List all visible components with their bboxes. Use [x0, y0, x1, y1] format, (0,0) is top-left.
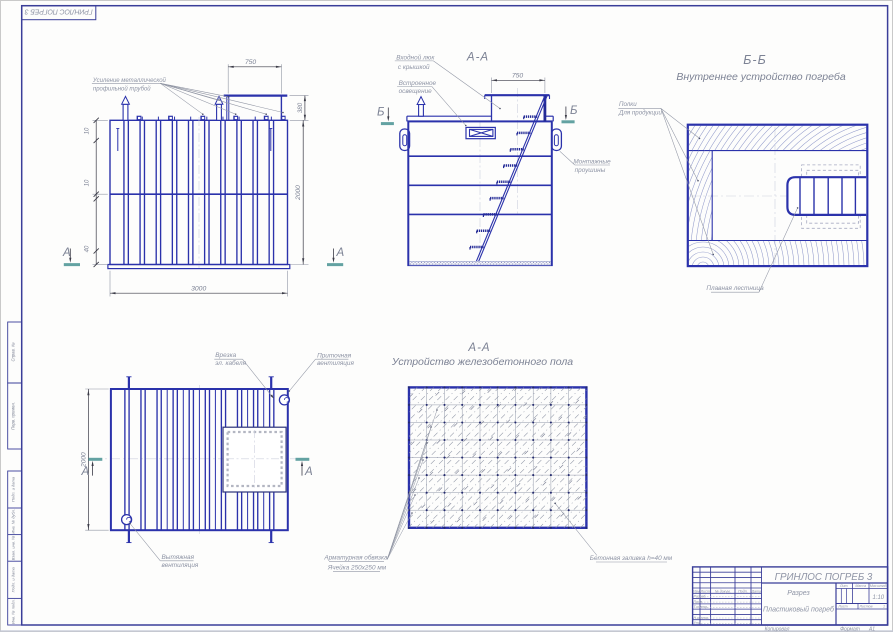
- svg-text:Разрез: Разрез: [787, 590, 810, 597]
- svg-text:3000: 3000: [191, 286, 206, 293]
- svg-text:ГРИНЛОС ПОГРЕБ 3: ГРИНЛОС ПОГРЕБ 3: [25, 7, 93, 14]
- svg-text:Т.контр.: Т.контр.: [694, 605, 709, 609]
- svg-text:А: А: [336, 247, 345, 259]
- svg-text:10: 10: [85, 179, 91, 186]
- svg-text:Утв.: Утв.: [694, 621, 702, 625]
- svg-text:Справ. №: Справ. №: [11, 342, 16, 361]
- svg-text:Арматурная обвязка: Арматурная обвязка: [323, 554, 388, 562]
- svg-text:1: 1: [883, 605, 885, 609]
- svg-text:Монтажные: Монтажные: [573, 158, 611, 165]
- svg-text:А-А: А-А: [466, 52, 489, 64]
- svg-text:Инв. № дубл.: Инв. № дубл.: [11, 509, 16, 534]
- svg-text:проушины: проушины: [575, 167, 606, 174]
- svg-text:Внутреннее устройство погреба: Внутреннее устройство погреба: [676, 71, 846, 83]
- svg-text:Инв. № подл.: Инв. № подл.: [11, 599, 16, 624]
- svg-text:эл. кабеля: эл. кабеля: [215, 359, 246, 367]
- svg-text:Лит.: Лит.: [839, 584, 848, 588]
- svg-text:Б: Б: [570, 105, 578, 117]
- svg-text:Встроенное: Встроенное: [399, 80, 437, 87]
- svg-text:Полки: Полки: [619, 101, 637, 108]
- svg-text:Перв. примен.: Перв. примен.: [11, 402, 16, 430]
- svg-text:40: 40: [85, 245, 91, 252]
- svg-text:Для продукции: Для продукции: [618, 109, 663, 116]
- svg-text:профильной трубой: профильной трубой: [93, 86, 151, 93]
- svg-text:Подп.: Подп.: [738, 589, 748, 593]
- svg-text:вентиляция: вентиляция: [317, 360, 354, 367]
- svg-text:Подп. и дата: Подп. и дата: [11, 476, 16, 502]
- svg-text:750: 750: [245, 59, 257, 66]
- svg-text:вентиляция: вентиляция: [162, 562, 199, 569]
- svg-text:Формат: Формат: [840, 627, 860, 633]
- svg-text:Взам. инв. №: Взам. инв. №: [11, 535, 16, 560]
- svg-text:10: 10: [85, 127, 91, 134]
- svg-text:Устройство железобетонного пол: Устройство железобетонного пола: [391, 356, 573, 368]
- svg-text:А: А: [81, 466, 90, 478]
- svg-text:Плавная лестница: Плавная лестница: [706, 285, 764, 292]
- svg-text:Вытяжная: Вытяжная: [162, 554, 195, 561]
- svg-text:А: А: [304, 466, 313, 478]
- svg-text:А1: А1: [868, 627, 875, 633]
- svg-text:Входной люк: Входной люк: [396, 53, 435, 61]
- svg-text:Копировал: Копировал: [765, 627, 790, 633]
- svg-text:с крышкой: с крышкой: [398, 63, 430, 71]
- svg-text:Лист: Лист: [700, 589, 710, 593]
- svg-text:Изм: Изм: [693, 589, 700, 593]
- svg-text:А: А: [62, 247, 71, 259]
- svg-text:ГРИНЛОС ПОГРЕБ 3: ГРИНЛОС ПОГРЕБ 3: [775, 572, 873, 583]
- svg-text:А-А: А-А: [467, 342, 490, 354]
- svg-text:2000: 2000: [295, 185, 302, 201]
- svg-text:750: 750: [512, 73, 524, 80]
- svg-text:Бетонная заливка h=40 мм: Бетонная заливка h=40 мм: [590, 555, 673, 562]
- svg-text:Б: Б: [377, 106, 385, 118]
- svg-text:Подп. и дата: Подп. и дата: [11, 567, 16, 593]
- svg-text:освещение: освещение: [399, 88, 433, 95]
- svg-text:380: 380: [297, 102, 304, 113]
- svg-text:Ячейка 250х250 мм: Ячейка 250х250 мм: [327, 564, 387, 572]
- svg-text:№ докум.: № докум.: [715, 589, 731, 593]
- svg-text:Дата: Дата: [750, 589, 760, 593]
- svg-text:Врезка: Врезка: [215, 352, 236, 359]
- svg-text:Лист: Лист: [837, 605, 847, 609]
- svg-text:Приточная: Приточная: [317, 353, 352, 360]
- svg-text:1:10: 1:10: [872, 595, 884, 601]
- svg-text:Пластиковый погреб: Пластиковый погреб: [763, 606, 835, 614]
- svg-text:Масса: Масса: [855, 584, 866, 588]
- svg-text:Б-Б: Б-Б: [743, 53, 766, 67]
- svg-text:Усиление металлической: Усиление металлической: [92, 77, 167, 84]
- svg-text:Масштаб: Масштаб: [870, 584, 888, 588]
- svg-text:Листов: Листов: [858, 605, 872, 609]
